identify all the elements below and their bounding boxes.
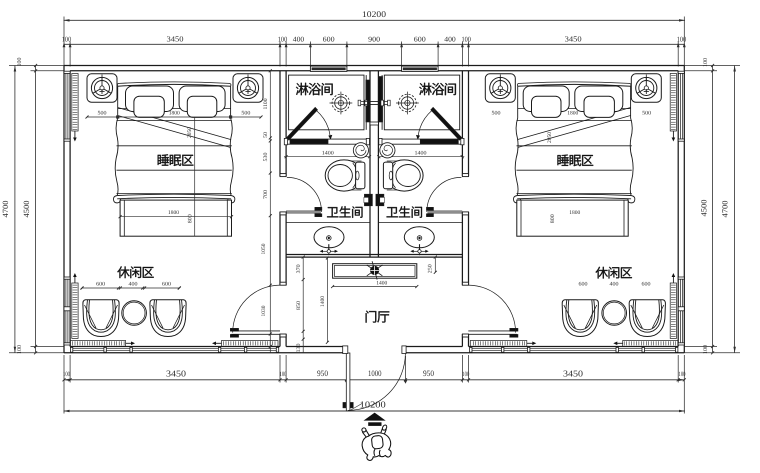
svg-text:1400: 1400	[322, 150, 334, 156]
svg-text:3450: 3450	[563, 369, 584, 379]
svg-text:100: 100	[677, 36, 687, 44]
svg-text:1030: 1030	[261, 305, 267, 316]
svg-text:4500: 4500	[22, 201, 31, 218]
svg-text:100: 100	[679, 371, 686, 378]
svg-text:1800: 1800	[169, 111, 180, 117]
svg-text:4700: 4700	[1, 201, 10, 218]
svg-text:100: 100	[278, 36, 288, 44]
svg-text:2050: 2050	[187, 127, 193, 138]
svg-text:800: 800	[187, 214, 193, 223]
svg-text:100: 100	[461, 36, 471, 44]
svg-text:1050: 1050	[261, 243, 267, 254]
svg-text:900: 900	[368, 36, 380, 44]
svg-text:130: 130	[296, 343, 302, 352]
svg-text:800: 800	[550, 214, 556, 223]
svg-text:950: 950	[317, 369, 328, 378]
svg-text:600: 600	[414, 36, 426, 44]
svg-text:1100: 1100	[263, 98, 269, 109]
svg-text:600: 600	[162, 282, 171, 288]
svg-text:500: 500	[642, 111, 651, 117]
svg-text:100: 100	[703, 345, 709, 354]
svg-text:100: 100	[63, 371, 70, 378]
svg-text:1800: 1800	[569, 210, 580, 216]
svg-text:600: 600	[323, 36, 335, 44]
svg-text:600: 600	[579, 282, 588, 288]
svg-text:500: 500	[98, 111, 107, 117]
svg-text:100: 100	[703, 58, 709, 67]
svg-text:250: 250	[428, 264, 434, 273]
svg-text:400: 400	[610, 282, 619, 288]
svg-text:600: 600	[642, 282, 651, 288]
svg-text:1800: 1800	[567, 111, 578, 117]
svg-text:500: 500	[241, 111, 250, 117]
svg-text:4500: 4500	[699, 200, 708, 217]
svg-text:1000: 1000	[368, 369, 382, 378]
svg-text:500: 500	[492, 111, 501, 117]
svg-text:3450: 3450	[166, 369, 187, 379]
svg-text:400: 400	[293, 36, 305, 44]
svg-text:100: 100	[280, 371, 287, 378]
svg-text:10200: 10200	[362, 9, 386, 19]
svg-text:100: 100	[17, 57, 23, 66]
svg-text:530: 530	[263, 152, 269, 161]
svg-text:1400: 1400	[320, 296, 326, 307]
svg-text:700: 700	[263, 190, 269, 199]
svg-text:1400: 1400	[376, 280, 387, 286]
svg-text:3450: 3450	[565, 35, 582, 44]
svg-text:1800: 1800	[168, 210, 179, 216]
svg-text:400: 400	[444, 36, 456, 44]
svg-text:10200: 10200	[360, 399, 386, 409]
svg-text:3450: 3450	[167, 35, 184, 44]
svg-text:600: 600	[96, 282, 105, 288]
svg-text:2050: 2050	[547, 132, 553, 143]
svg-text:100: 100	[17, 345, 23, 354]
svg-text:950: 950	[423, 369, 434, 378]
svg-text:400: 400	[129, 282, 138, 288]
svg-text:50: 50	[263, 132, 269, 138]
svg-text:4700: 4700	[721, 201, 730, 218]
svg-text:370: 370	[296, 264, 302, 273]
svg-text:850: 850	[296, 301, 302, 310]
svg-text:100: 100	[462, 371, 469, 378]
svg-text:1400: 1400	[415, 150, 427, 156]
svg-text:100: 100	[62, 36, 72, 44]
